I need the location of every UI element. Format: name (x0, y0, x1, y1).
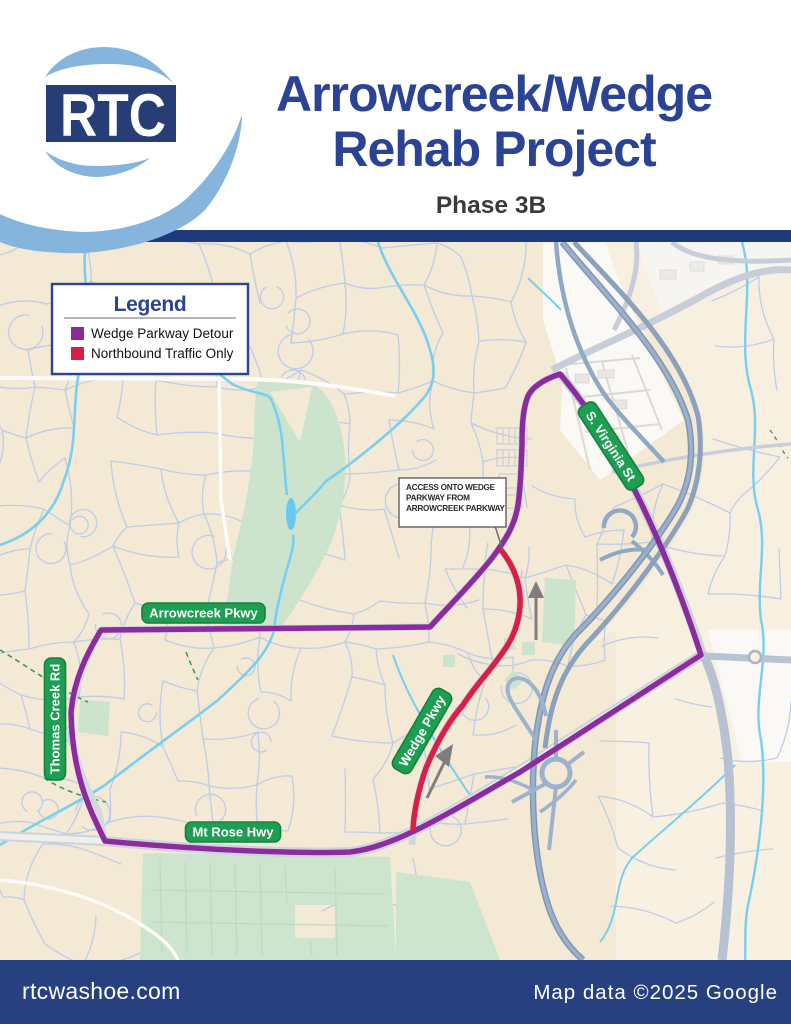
svg-text:Legend: Legend (114, 293, 187, 316)
svg-text:PARKWAY FROM: PARKWAY FROM (406, 494, 470, 503)
svg-text:Arrowcreek Pkwy: Arrowcreek Pkwy (149, 606, 258, 621)
svg-text:ACCESS ONTO WEDGE: ACCESS ONTO WEDGE (406, 483, 496, 492)
svg-text:Arrowcreek/Wedge: Arrowcreek/Wedge (276, 66, 712, 122)
svg-text:Rehab Project: Rehab Project (332, 121, 657, 177)
svg-text:RTC: RTC (60, 82, 166, 149)
svg-text:ARROWCREEK PARKWAY: ARROWCREEK PARKWAY (406, 504, 506, 513)
svg-text:Phase 3B: Phase 3B (436, 192, 546, 219)
svg-text:Northbound Traffic Only: Northbound Traffic Only (91, 346, 234, 361)
svg-text:Map data ©2025 Google: Map data ©2025 Google (533, 981, 778, 1004)
svg-text:Thomas Creek Rd: Thomas Creek Rd (48, 664, 63, 775)
svg-text:rtcwashoe.com: rtcwashoe.com (22, 978, 181, 1004)
svg-text:Wedge Parkway Detour: Wedge Parkway Detour (91, 326, 234, 341)
svg-text:Mt Rose Hwy: Mt Rose Hwy (193, 825, 275, 840)
